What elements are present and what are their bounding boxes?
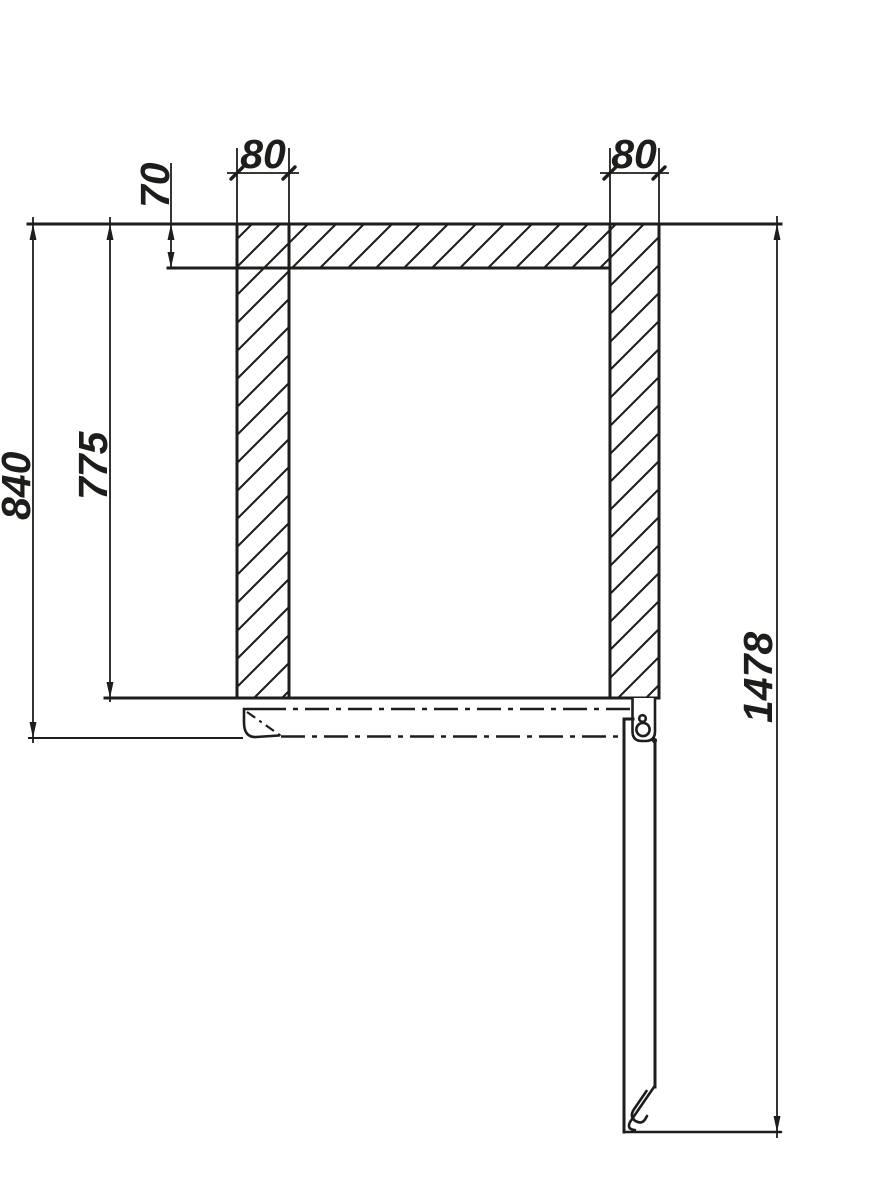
dim-775-arrow-up [107, 224, 114, 240]
hinge-cup-circle [636, 723, 649, 736]
dim-label-1478: 1478 [735, 632, 781, 723]
dim-label-840: 840 [0, 451, 39, 520]
dimension-70: 70 [132, 162, 178, 268]
dim-label-80-right: 80 [611, 131, 657, 177]
dim-70-arrow-up [168, 224, 175, 240]
dimension-80-right: 80 [600, 131, 669, 224]
section-hatch-fill [237, 224, 659, 698]
drawing-page: 840 775 70 80 80 1478 [0, 0, 875, 1200]
dimension-1478: 1478 [735, 216, 781, 1138]
dimension-775: 775 [70, 217, 116, 702]
hinge-screw-small [639, 715, 646, 722]
dim-1478-arrow-up [774, 224, 781, 240]
dim-840-arrow-down [30, 722, 37, 738]
dimension-80-left: 80 [227, 131, 299, 224]
open-door-panel [624, 719, 781, 1132]
hinge-assembly [633, 698, 658, 743]
dim-1478-arrow-down [774, 1116, 781, 1132]
hatched-frame-section [28, 224, 781, 698]
dim-775-arrow-down [107, 682, 114, 698]
worktop-profile-diagonal [247, 712, 281, 736]
dim-840-arrow-up [30, 224, 37, 240]
dimension-840: 840 [0, 217, 243, 743]
dim-label-70: 70 [132, 162, 178, 208]
dim-70-arrow-down [168, 252, 175, 268]
drawing-canvas: 840 775 70 80 80 1478 [0, 0, 875, 1200]
dim-label-80-left: 80 [240, 131, 286, 177]
dim-label-775: 775 [70, 430, 116, 500]
worktop-phantom [244, 709, 632, 737]
